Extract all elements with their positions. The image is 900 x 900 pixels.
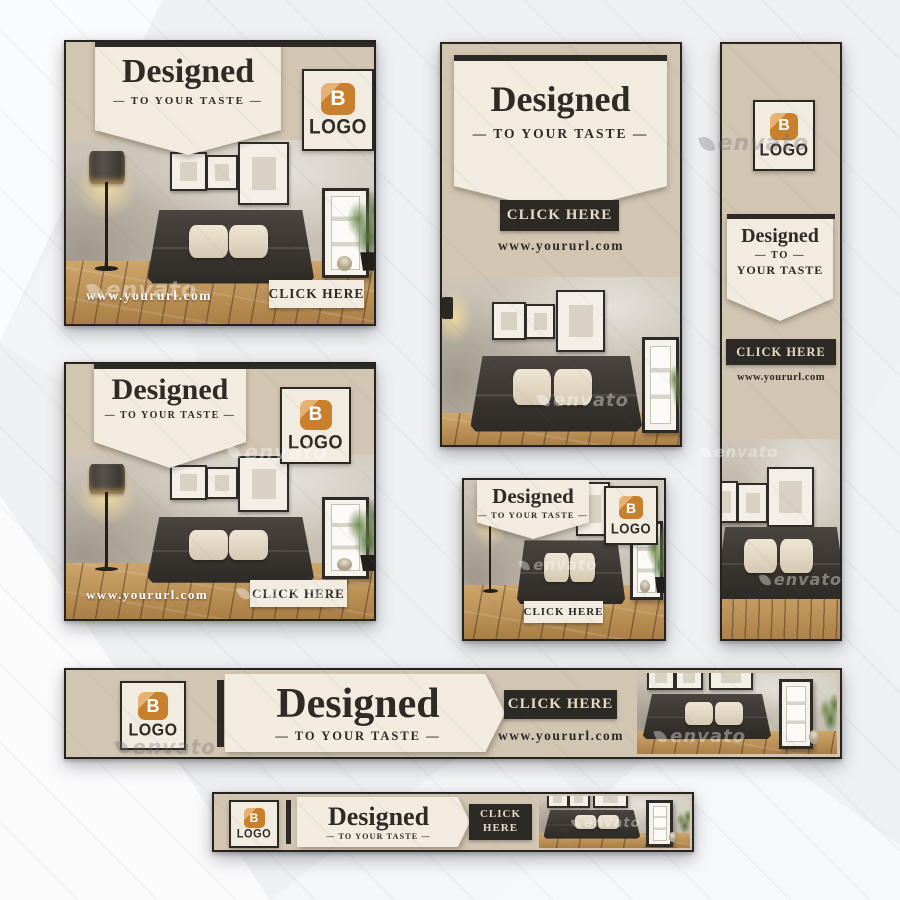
sofa-pillow [554,369,592,404]
plant [346,500,374,563]
logo-b-icon: B [619,496,643,519]
banner-set-preview: www.yoururl.com CLICK HERE Designed — TO… [0,0,900,900]
wall-frame [556,290,605,351]
lamp-stem [105,182,108,268]
headline: Designed [276,683,439,725]
logo-box: B LOGO [302,69,374,151]
logo-b-icon: B [321,83,355,115]
banner-vertical-rectangle: Designed — TO YOUR TASTE — CLICK HERE ww… [440,42,682,447]
wall-frame [647,673,675,690]
logo-text: LOGO [288,432,343,452]
leaning-frame [779,679,813,748]
banner-leaderboard: B LOGO Designed — TO YOUR TASTE — CLICK … [64,668,842,759]
sofa-pillow [189,530,228,560]
tagline: — TO YOUR TASTE — [473,126,649,142]
top-accent-bar [95,42,374,47]
sofa-pillow [598,815,619,830]
headline-pennant: Designed — TO YOUR TASTE — [94,364,246,468]
logo-b-icon: B [244,808,265,828]
logo-b-icon: B [300,400,332,430]
tagline-taste: YOUR TASTE [737,263,824,278]
headline-panel: Designed — TO YOUR TASTE — [225,674,505,752]
tagline: — TO YOUR TASTE — [326,832,430,841]
room-photo [539,796,690,848]
click-here-line1: CLICK [480,808,521,822]
sofa-pillow [744,539,777,573]
wall-frame [170,152,207,191]
banner-medium-rectangle: www.yoururl.com CLICK HERE Designed — TO… [64,362,376,621]
website-url[interactable]: www.yoururl.com [722,372,840,383]
lamp-base [483,589,498,593]
wall-frame [737,483,768,523]
wall-frame [206,155,238,190]
click-here-button[interactable]: CLICK HERE [504,690,617,719]
vase [809,730,819,745]
wall-frame [525,304,555,339]
headline: Designed [112,375,229,405]
sofa-pillow [780,539,813,573]
sofa-pillow [513,369,551,404]
logo-box: B LOGO [229,800,279,848]
headline-panel: Designed — TO YOUR TASTE — [297,797,470,847]
top-accent-bar [94,364,374,369]
envato-leaf-icon [700,446,712,459]
website-url[interactable]: www.yoururl.com [442,238,680,254]
website-url[interactable]: www.yoururl.com [496,728,626,744]
click-here-button[interactable]: CLICK HERE [469,804,532,840]
banner-small-rectangle: Designed — TO YOUR TASTE — B LOGO CLICK … [462,478,666,641]
wall-frame [767,467,815,527]
wall-frame [593,796,627,808]
lamp-base [95,266,118,271]
logo-b-icon: B [770,113,798,140]
headline: Designed [328,804,429,830]
headline: Designed [122,55,254,89]
wall-frame [170,465,207,500]
divider-bar [217,680,224,747]
website-url[interactable]: www.yoururl.com [86,288,212,304]
wall-frame [492,302,526,340]
plant [346,192,374,262]
floor-lamp-shade [89,151,124,184]
wall-frame [568,796,590,808]
logo-text: LOGO [759,142,808,160]
floor-lamp-shade [89,464,124,494]
click-here-button[interactable]: CLICK HERE [250,580,347,607]
vase [337,256,352,271]
tagline: — TO YOUR TASTE — [113,95,263,107]
top-accent-bar [454,55,667,61]
logo-b-icon: B [138,692,168,720]
plant [676,810,690,835]
sofa-pillow [575,815,596,830]
logo-box: B LOGO [753,100,815,171]
tagline-to: — TO — [755,250,805,261]
sofa-pillow [715,702,743,725]
logo-box: B LOGO [280,387,351,464]
sofa-pillow [544,553,569,582]
click-here-button[interactable]: CLICK HERE [269,280,364,308]
lamp-stem [105,492,108,570]
logo-text: LOGO [237,828,271,840]
wall-frame [675,673,703,690]
sofa-pillow [189,225,228,258]
wall-frame [709,673,753,690]
room-photo [722,439,840,639]
wall-frame [547,796,569,808]
sofa-pillow [229,225,268,258]
banner-small-leaderboard: B LOGO Designed — TO YOUR TASTE — CLICK … [212,792,694,852]
vase [640,580,650,593]
tagline: — TO YOUR TASTE — [275,729,440,744]
headline-pennant: Designed — TO YOUR TASTE — [477,480,589,539]
divider-bar [286,800,291,844]
website-url[interactable]: www.yoururl.com [86,587,208,603]
room-photo [442,277,680,445]
banner-skyscraper: B LOGO Designed — TO — YOUR TASTE CLICK … [720,42,842,641]
sofa-pillow [570,553,595,582]
sofa-pillow [229,530,268,560]
headline-pennant: Designed — TO — YOUR TASTE [727,214,833,321]
click-here-button[interactable]: CLICK HERE [500,200,619,231]
room-photo [637,673,837,754]
plant [668,358,680,412]
sofa-pillow [685,702,713,725]
wall-lamp [442,297,453,319]
logo-text: LOGO [128,722,177,740]
top-accent-bar [727,214,835,219]
tagline: — TO YOUR TASTE — [105,410,236,421]
logo-box: B LOGO [120,681,186,750]
banner-medium-rectangle-top: www.yoururl.com CLICK HERE Designed — TO… [64,40,376,326]
click-here-button[interactable]: CLICK HERE [524,601,603,623]
click-here-line2: HERE [483,822,518,836]
tagline: — TO YOUR TASTE — [478,510,588,520]
headline: Designed [490,81,630,117]
headline-pennant: Designed — TO YOUR TASTE — [95,42,281,155]
logo-text: LOGO [611,521,651,535]
headline: Designed [741,226,819,246]
logo-box: B LOGO [604,486,658,545]
plant [819,694,837,733]
logo-text: LOGO [309,117,367,138]
wall-frame [722,481,738,523]
wall-frame [206,467,238,499]
click-here-button[interactable]: CLICK HERE [726,339,836,365]
headline: Designed [492,486,574,507]
headline-pennant: Designed — TO YOUR TASTE — [454,55,667,213]
envato-leaf-icon [698,134,715,153]
